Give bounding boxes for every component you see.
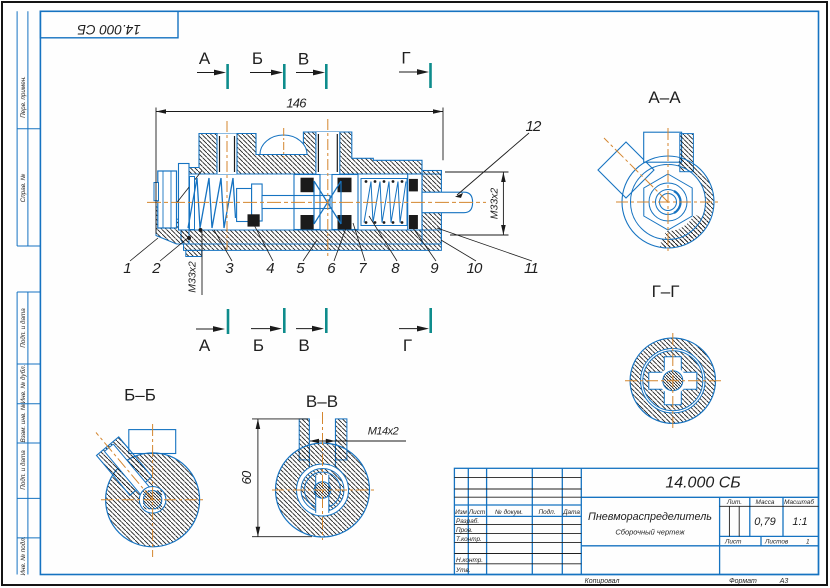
svg-text:2: 2 — [151, 260, 161, 277]
svg-text:Масштаб: Масштаб — [784, 498, 814, 506]
svg-text:1: 1 — [123, 260, 131, 277]
svg-text:Подп. и дата: Подп. и дата — [19, 450, 27, 490]
svg-text:M14x2: M14x2 — [368, 426, 399, 438]
svg-text:Подп. и дата: Подп. и дата — [19, 308, 27, 348]
svg-text:Б–Б: Б–Б — [124, 386, 156, 405]
svg-text:Лит.: Лит. — [726, 499, 742, 506]
svg-text:Изм: Изм — [455, 509, 467, 516]
svg-text:Копировал: Копировал — [585, 578, 620, 585]
svg-text:1: 1 — [806, 539, 810, 546]
svg-text:11: 11 — [524, 260, 538, 277]
svg-text:60: 60 — [239, 470, 254, 484]
svg-text:14.000 СБ: 14.000 СБ — [77, 22, 141, 37]
svg-text:Г: Г — [403, 336, 412, 355]
svg-text:12: 12 — [525, 118, 542, 135]
svg-text:Пров.: Пров. — [456, 527, 473, 534]
svg-text:Лист: Лист — [724, 539, 742, 546]
svg-text:А–А: А–А — [648, 88, 681, 107]
svg-text:А: А — [199, 49, 211, 68]
svg-text:Инв. № дубл.: Инв. № дубл. — [19, 365, 27, 404]
svg-text:Лист: Лист — [468, 509, 486, 516]
svg-text:Б: Б — [253, 336, 264, 355]
svg-text:Листов: Листов — [764, 539, 789, 546]
svg-text:14.000 СБ: 14.000 СБ — [665, 475, 740, 492]
svg-text:М33х2: М33х2 — [187, 261, 199, 293]
svg-text:Т.контр.: Т.контр. — [456, 536, 482, 543]
svg-text:М33х2: М33х2 — [489, 188, 501, 220]
svg-text:Формат: Формат — [729, 578, 757, 585]
svg-text:А3: А3 — [779, 578, 789, 585]
svg-text:В–В: В–В — [306, 392, 338, 411]
svg-text:Г: Г — [401, 49, 410, 68]
svg-text:Дата: Дата — [562, 509, 580, 516]
svg-text:Разраб.: Разраб. — [456, 517, 479, 525]
svg-text:1:1: 1:1 — [792, 516, 807, 528]
svg-text:В: В — [298, 50, 309, 69]
svg-text:0,79: 0,79 — [754, 516, 775, 528]
svg-text:Взам. инв. №: Взам. инв. № — [20, 403, 27, 442]
svg-text:А: А — [199, 336, 211, 355]
svg-text:Подп.: Подп. — [538, 508, 555, 516]
svg-text:10: 10 — [466, 260, 483, 277]
svg-text:Справ. №: Справ. № — [20, 174, 27, 203]
svg-text:Н.контр.: Н.контр. — [456, 557, 483, 564]
svg-text:В: В — [298, 336, 309, 355]
svg-text:Г–Г: Г–Г — [652, 282, 680, 301]
svg-text:Утв.: Утв. — [455, 567, 471, 574]
svg-text:Перв. примен.: Перв. примен. — [20, 76, 27, 118]
svg-text:Пневмораспределитель: Пневмораспределитель — [588, 511, 712, 523]
svg-text:4: 4 — [266, 260, 274, 277]
svg-text:№ докум.: № докум. — [495, 508, 523, 516]
svg-text:Сборочный чертеж: Сборочный чертеж — [615, 528, 685, 537]
svg-text:Инв. № подл.: Инв. № подл. — [19, 536, 27, 575]
svg-text:Б: Б — [252, 49, 263, 68]
svg-text:146: 146 — [286, 96, 307, 111]
svg-text:Масса: Масса — [756, 499, 775, 506]
